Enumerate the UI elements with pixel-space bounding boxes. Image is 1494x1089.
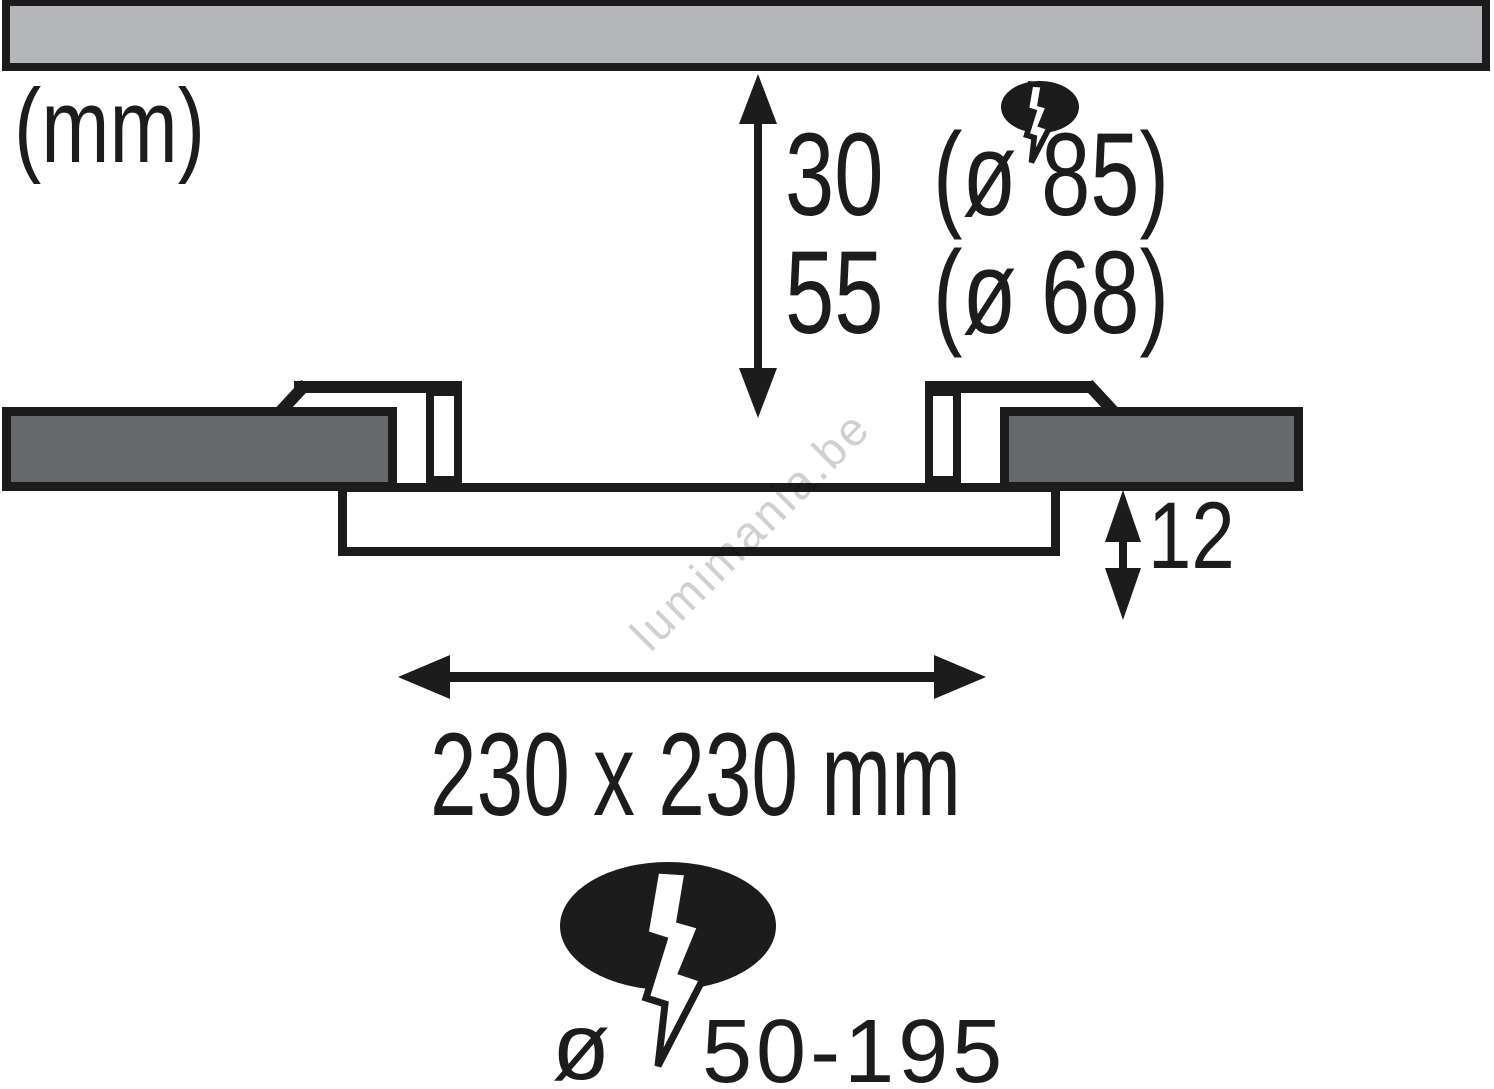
panel-flange-left (2, 407, 397, 491)
ceiling-bar (2, 0, 1490, 71)
mounting-clip-bar-left (294, 381, 462, 393)
depth-value-1: 30 (785, 116, 883, 234)
mounting-clip-bar-right (925, 381, 1093, 393)
mounting-clip-slot-right (925, 388, 961, 484)
depth-diameter-2: (ø 68) (933, 234, 1169, 352)
installation-diagram: (mm) 30 (ø 85) 55 (ø 68) 12 (0, 0, 1494, 1089)
mounting-clip-slot-left (426, 388, 462, 484)
depth-value-2: 55 (785, 234, 883, 352)
depth-double-arrow-icon (735, 74, 781, 418)
thickness-label: 12 (1148, 489, 1235, 584)
units-label: (mm) (14, 74, 205, 179)
depth-line-1: 30 (ø 85) (785, 116, 1169, 234)
cutout-double-arrow-icon (398, 650, 986, 704)
cable-diameter-symbol: ø (552, 1000, 610, 1089)
thickness-double-arrow-icon (1100, 490, 1146, 620)
cutout-size-label: 230 x 230 mm (430, 716, 961, 834)
electric-connection-icon (995, 78, 1090, 168)
mounting-clip-spring-left (276, 380, 312, 416)
mounting-clip-spring-right (1082, 380, 1118, 416)
panel-flange-right (1000, 407, 1303, 491)
depth-line-2: 55 (ø 68) (785, 234, 1169, 352)
cable-range-label: 50-195 (702, 1007, 1006, 1089)
